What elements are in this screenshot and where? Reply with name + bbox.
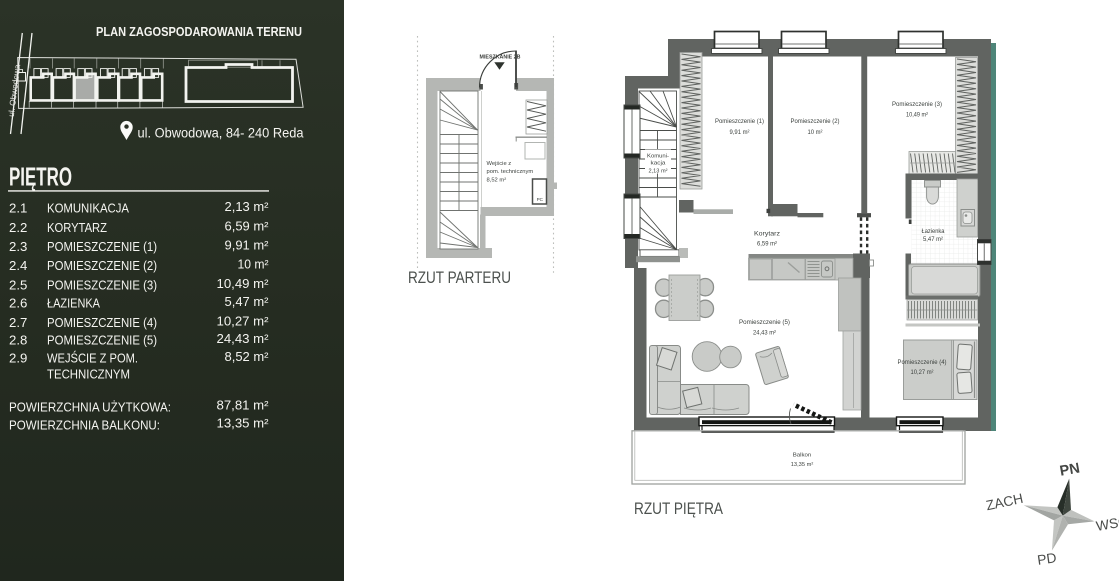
svg-text:2.3: 2.3	[9, 239, 27, 254]
svg-text:24,43 m²: 24,43 m²	[217, 331, 270, 346]
svg-text:2.6: 2.6	[9, 296, 27, 311]
svg-text:Pomieszczenie (4): Pomieszczenie (4)	[898, 359, 947, 366]
svg-text:6,59 m²: 6,59 m²	[757, 241, 777, 248]
svg-text:POMIESZCZENIE (5): POMIESZCZENIE (5)	[47, 333, 157, 348]
svg-text:9,91 m²: 9,91 m²	[225, 238, 270, 253]
svg-text:POWIERZCHNIA UŻYTKOWA:: POWIERZCHNIA UŻYTKOWA:	[9, 400, 171, 415]
svg-text:RZUT PIĘTRA: RZUT PIĘTRA	[634, 500, 723, 518]
svg-text:Pomieszczenie (5): Pomieszczenie (5)	[739, 319, 790, 326]
svg-text:2,13 m²: 2,13 m²	[225, 199, 270, 214]
svg-text:2.5: 2.5	[9, 277, 27, 292]
svg-text:2.9: 2.9	[9, 350, 27, 365]
svg-text:RZUT PARTERU: RZUT PARTERU	[408, 269, 511, 287]
svg-text:13,35 m²: 13,35 m²	[791, 462, 814, 468]
svg-text:TECHNICZNYM: TECHNICZNYM	[47, 367, 130, 382]
svg-text:87,81 m²: 87,81 m²	[217, 397, 270, 412]
svg-text:2.8: 2.8	[9, 333, 27, 348]
svg-text:10,49 m²: 10,49 m²	[217, 276, 270, 291]
svg-text:ŁAZIENKA: ŁAZIENKA	[47, 296, 100, 311]
svg-text:8,52 m²: 8,52 m²	[225, 349, 270, 364]
svg-text:Wejście z: Wejście z	[487, 161, 512, 167]
svg-text:2.7: 2.7	[9, 315, 27, 330]
svg-text:13,35 m²: 13,35 m²	[217, 416, 270, 431]
svg-text:POMIESZCZENIE (3): POMIESZCZENIE (3)	[47, 277, 157, 292]
svg-text:Pomieszczenie (3): Pomieszczenie (3)	[892, 101, 942, 108]
svg-text:2.1: 2.1	[9, 201, 27, 216]
svg-text:kacja: kacja	[651, 161, 667, 167]
svg-text:ul. Obwodowa, 84- 240 Reda: ul. Obwodowa, 84- 240 Reda	[138, 126, 304, 142]
svg-text:POMIESZCZENIE (4): POMIESZCZENIE (4)	[47, 315, 157, 330]
svg-text:Balkon: Balkon	[793, 453, 812, 459]
svg-text:10,27 m²: 10,27 m²	[217, 313, 270, 328]
svg-text:pom. technicznym: pom. technicznym	[487, 169, 534, 175]
svg-text:10 m²: 10 m²	[808, 129, 823, 136]
svg-text:24,43 m²: 24,43 m²	[753, 330, 776, 337]
svg-text:2.2: 2.2	[9, 220, 27, 235]
svg-text:2.4: 2.4	[9, 258, 27, 273]
svg-text:PIĘTRO: PIĘTRO	[9, 162, 72, 192]
svg-text:PD: PD	[1036, 550, 1057, 568]
svg-text:PLAN ZAGOSPODAROWANIA TERENU: PLAN ZAGOSPODAROWANIA TERENU	[96, 24, 302, 39]
svg-text:5,47 m²: 5,47 m²	[923, 236, 943, 243]
svg-text:6,59 m²: 6,59 m²	[225, 219, 270, 234]
svg-text:KORYTARZ: KORYTARZ	[47, 220, 107, 235]
svg-text:Korytarz: Korytarz	[754, 231, 780, 238]
svg-text:5,47 m²: 5,47 m²	[225, 294, 270, 309]
svg-text:9,91 m²: 9,91 m²	[730, 129, 750, 136]
svg-text:Komuni-: Komuni-	[647, 154, 669, 160]
svg-text:Łazienka: Łazienka	[922, 228, 945, 235]
svg-text:MIESZKANIE 2B: MIESZKANIE 2B	[480, 55, 521, 61]
svg-text:POMIESZCZENIE (2): POMIESZCZENIE (2)	[47, 258, 157, 273]
svg-text:POWIERZCHNIA BALKONU:: POWIERZCHNIA BALKONU:	[9, 418, 160, 433]
svg-text:10,27 m²: 10,27 m²	[911, 369, 934, 376]
svg-text:PC: PC	[537, 197, 544, 202]
svg-text:10 m²: 10 m²	[238, 257, 270, 272]
svg-text:WEJŚCIE Z POM.: WEJŚCIE Z POM.	[47, 350, 138, 365]
svg-text:8,52 m²: 8,52 m²	[487, 178, 507, 184]
svg-text:KOMUNIKACJA: KOMUNIKACJA	[47, 201, 129, 216]
svg-text:Pomieszczenie (1): Pomieszczenie (1)	[715, 118, 764, 125]
svg-text:POMIESZCZENIE (1): POMIESZCZENIE (1)	[47, 239, 157, 254]
svg-text:10,49 m²: 10,49 m²	[906, 112, 928, 119]
svg-text:Pomieszczenie (2): Pomieszczenie (2)	[791, 118, 840, 125]
svg-text:2,13 m²: 2,13 m²	[649, 169, 668, 175]
